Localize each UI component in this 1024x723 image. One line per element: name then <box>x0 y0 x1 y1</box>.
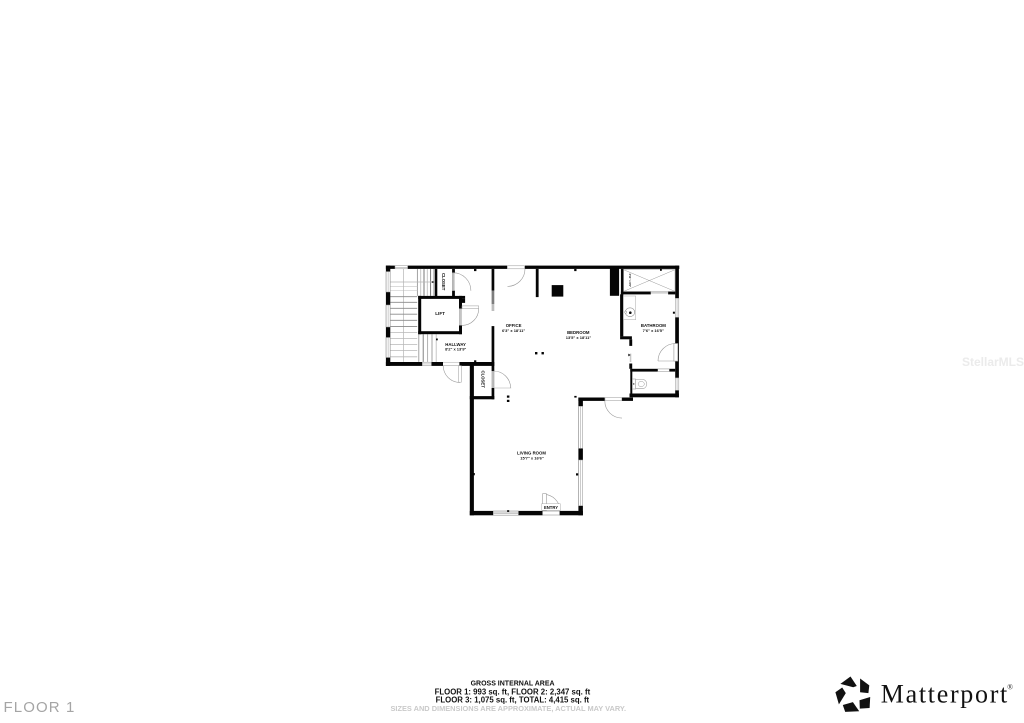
svg-text:SIZES AND DIMENSIONS ARE APPRO: SIZES AND DIMENSIONS ARE APPROXIMATE, AC… <box>391 704 627 713</box>
svg-text:®: ® <box>1007 683 1013 692</box>
svg-text:FLOOR 1: FLOOR 1 <box>4 699 76 716</box>
svg-text:8'2" x 13'9": 8'2" x 13'9" <box>445 346 466 351</box>
svg-text:CLOSET: CLOSET <box>481 370 486 388</box>
svg-text:4'11" x 8'6": 4'11" x 8'6" <box>628 273 632 287</box>
svg-text:CLOSET: CLOSET <box>441 273 446 291</box>
svg-text:13'5" x 18'11": 13'5" x 18'11" <box>566 335 592 340</box>
svg-text:LIFT: LIFT <box>435 311 445 316</box>
svg-text:15'7" x 16'6": 15'7" x 16'6" <box>520 456 544 461</box>
svg-text:Matterport: Matterport <box>881 679 1009 708</box>
svg-text:StellarMLS: StellarMLS <box>962 355 1024 369</box>
svg-text:7'6" x 16'5": 7'6" x 16'5" <box>643 328 664 333</box>
svg-text:ENTRY: ENTRY <box>544 505 558 510</box>
svg-text:6'3" x 18'11": 6'3" x 18'11" <box>502 328 525 333</box>
